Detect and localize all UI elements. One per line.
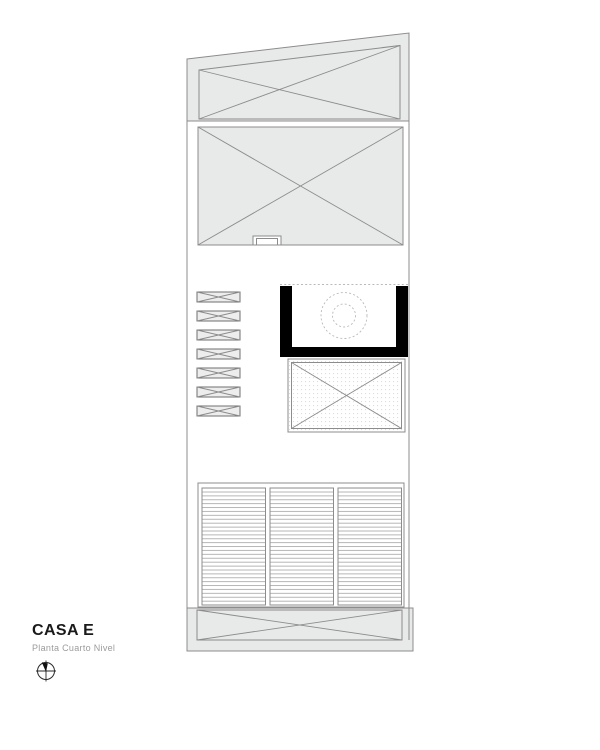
roof-hatch (253, 236, 281, 245)
room-wall-right (396, 286, 408, 357)
stair-slat (197, 349, 240, 359)
deck-louver-panel (270, 488, 334, 605)
stair-slat (197, 330, 240, 340)
title-block: CASA E Planta Cuarto Nivel (32, 622, 115, 684)
bottom-eave-band (187, 608, 413, 651)
drawing-title: CASA E (32, 622, 115, 640)
floor-plan-canvas: CASA E Planta Cuarto Nivel (0, 0, 600, 750)
deck-louver-panel (202, 488, 266, 605)
room-wall-bottom (280, 347, 408, 357)
eave-band-outline (187, 608, 413, 651)
room-wall-left (280, 286, 292, 357)
north-arrow-icon (33, 658, 59, 684)
stair-slats (197, 292, 240, 416)
hatched-roof-panel (288, 359, 405, 432)
stair-slat (197, 406, 240, 416)
stair-slat (197, 387, 240, 397)
upper-roof-terrace (198, 127, 403, 245)
stair-slat (197, 311, 240, 321)
stair-slat (197, 292, 240, 302)
deck-area (198, 483, 404, 607)
top-roof-band (187, 33, 409, 121)
drawing-subtitle: Planta Cuarto Nivel (32, 643, 115, 653)
deck-panels (202, 488, 402, 605)
deck-louver-panel (338, 488, 402, 605)
stair-slat (197, 368, 240, 378)
